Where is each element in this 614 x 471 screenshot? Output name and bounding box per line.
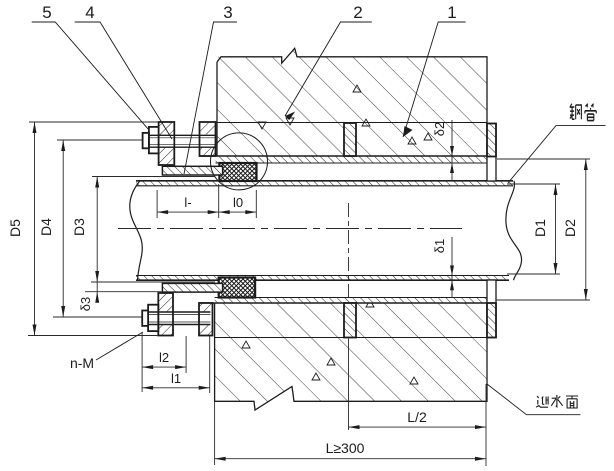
svg-text:l1: l1 — [171, 371, 181, 386]
svg-text:D3: D3 — [71, 218, 87, 236]
svg-text:D5: D5 — [7, 219, 23, 237]
svg-text:D1: D1 — [532, 219, 548, 237]
svg-text:l0: l0 — [233, 195, 243, 210]
svg-text:δ1: δ1 — [432, 239, 447, 253]
svg-text:δ2: δ2 — [432, 122, 447, 136]
svg-text:l-: l- — [184, 195, 191, 210]
svg-text:L/2: L/2 — [407, 409, 427, 425]
svg-text:1: 1 — [447, 3, 456, 22]
svg-text:4: 4 — [85, 3, 94, 22]
svg-text:5: 5 — [42, 3, 51, 22]
svg-text:D2: D2 — [562, 219, 578, 237]
svg-text:l2: l2 — [159, 350, 169, 365]
svg-text:L≥300: L≥300 — [326, 440, 365, 456]
svg-text:D4: D4 — [38, 218, 54, 236]
svg-text:3: 3 — [223, 3, 232, 22]
svg-text:2: 2 — [353, 3, 362, 22]
svg-text:δ3: δ3 — [78, 297, 93, 311]
svg-text:n-M: n-M — [70, 355, 94, 371]
